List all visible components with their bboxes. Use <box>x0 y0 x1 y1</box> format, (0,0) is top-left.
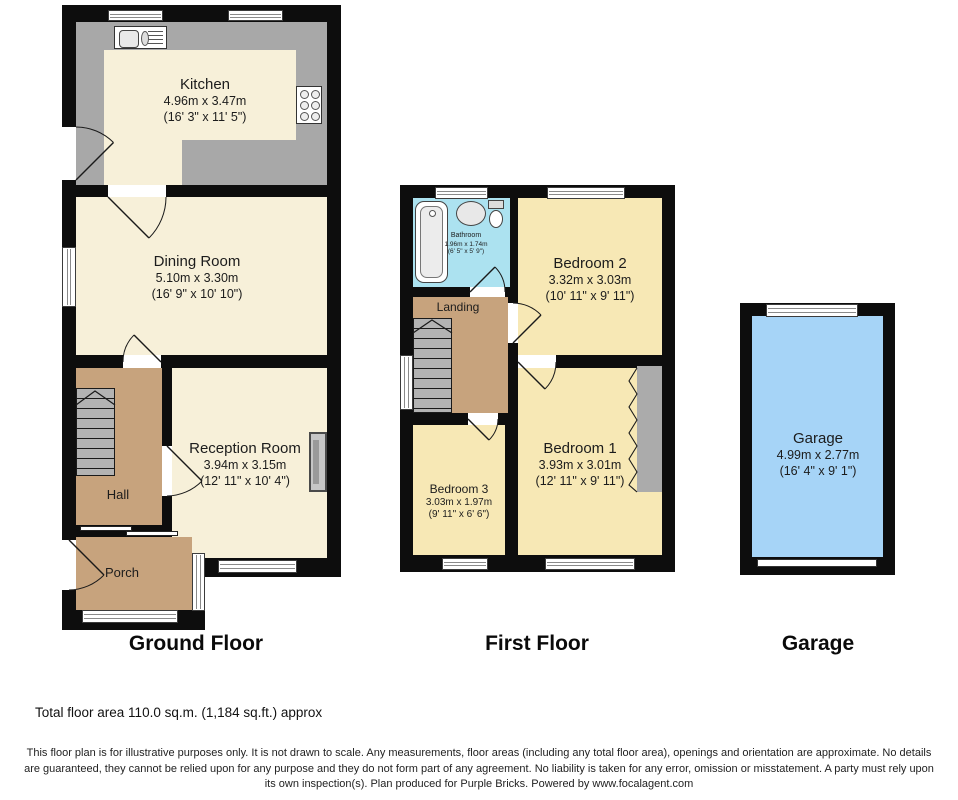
staircase-symbol <box>413 318 452 413</box>
total-floor-area-text: Total floor area 110.0 sq.m. (1,184 sq.f… <box>35 705 322 720</box>
door-opening <box>518 355 556 368</box>
garage-door-symbol <box>757 559 877 567</box>
room-dimensions-metric: 3.93m x 3.01m <box>500 458 660 473</box>
garage-title: Garage <box>718 632 918 656</box>
room-dimensions-imperial: (12' 11" x 9' 11") <box>500 474 660 489</box>
window-symbol <box>442 558 488 570</box>
first-floor-title: First Floor <box>437 632 637 656</box>
room-label-kitchen: Kitchen 4.96m x 3.47m (16' 3" x 11' 5") <box>105 76 305 125</box>
room-label-landing: Landing <box>412 300 504 315</box>
room-name: Hall <box>107 487 129 502</box>
room-name: Porch <box>105 565 139 580</box>
window-symbol <box>228 10 283 21</box>
room-label-bedroom1: Bedroom 1 3.93m x 3.01m (12' 11" x 9' 11… <box>500 440 660 489</box>
window-symbol <box>400 355 413 410</box>
window-symbol <box>82 610 178 623</box>
room-kitchen-lower <box>104 140 182 185</box>
room-dimensions-metric: 1.96m x 1.74m <box>430 241 502 249</box>
room-dimensions-imperial: (6' 5" x 5' 9") <box>430 248 502 256</box>
room-label-porch: Porch <box>82 565 162 581</box>
disclaimer-text: This floor plan is for illustrative purp… <box>24 746 934 793</box>
door-opening <box>508 303 518 343</box>
room-label-bedroom3: Bedroom 3 3.03m x 1.97m (9' 11" x 6' 6") <box>404 482 514 521</box>
staircase-symbol <box>76 388 115 476</box>
room-dimensions-metric: 3.32m x 3.03m <box>510 273 670 288</box>
room-dimensions-metric: 4.96m x 3.47m <box>105 94 305 109</box>
door-opening <box>62 127 76 180</box>
room-name: Bedroom 1 <box>500 440 660 458</box>
door-opening <box>468 413 498 425</box>
sliding-door-symbol <box>126 531 178 536</box>
door-opening <box>62 540 76 590</box>
ground-floor-title: Ground Floor <box>96 632 296 656</box>
room-dimensions-imperial: (16' 9" x 10' 10") <box>97 287 297 302</box>
room-dimensions-metric: 3.03m x 1.97m <box>404 497 514 509</box>
room-label-reception: Reception Room 3.94m x 3.15m (12' 11" x … <box>145 440 345 489</box>
window-symbol <box>766 304 858 317</box>
room-dimensions-imperial: (9' 11" x 6' 6") <box>404 509 514 521</box>
window-symbol <box>192 553 205 611</box>
kitchen-sink-symbol <box>114 26 167 49</box>
floorplan-page: Kitchen 4.96m x 3.47m (16' 3" x 11' 5") … <box>0 0 958 800</box>
room-label-hall: Hall <box>78 487 158 503</box>
room-dimensions-imperial: (12' 11" x 10' 4") <box>145 474 345 489</box>
room-label-garage: Garage 4.99m x 2.77m (16' 4" x 9' 1") <box>738 430 898 479</box>
room-dimensions-imperial: (10' 11" x 9' 11") <box>510 289 670 304</box>
window-symbol <box>547 187 625 199</box>
window-symbol <box>218 560 297 573</box>
room-name: Landing <box>437 300 480 314</box>
sink-bowl-icon <box>119 30 139 48</box>
door-opening <box>470 287 505 297</box>
sliding-door-symbol <box>80 526 132 531</box>
room-dimensions-metric: 3.94m x 3.15m <box>145 458 345 473</box>
window-symbol <box>108 10 163 21</box>
window-symbol <box>435 187 488 199</box>
basin-symbol <box>456 201 486 226</box>
room-label-bedroom2: Bedroom 2 3.32m x 3.03m (10' 11" x 9' 11… <box>510 255 670 304</box>
toilet-bowl-symbol <box>489 210 503 228</box>
room-name: Kitchen <box>105 76 305 94</box>
room-name: Bedroom 2 <box>510 255 670 273</box>
door-opening <box>108 185 166 197</box>
toilet-cistern-symbol <box>488 200 504 209</box>
sink-drainer-icon <box>148 31 163 46</box>
room-name: Dining Room <box>97 253 297 271</box>
room-name: Bedroom 3 <box>404 482 514 497</box>
window-symbol <box>62 247 76 307</box>
room-dimensions-imperial: (16' 4" x 9' 1") <box>738 464 898 479</box>
room-name: Bathroom <box>430 232 502 241</box>
room-name: Reception Room <box>145 440 345 458</box>
room-label-bathroom: Bathroom 1.96m x 1.74m (6' 5" x 5' 9") <box>430 232 502 256</box>
door-opening <box>123 355 161 368</box>
room-name: Garage <box>738 430 898 448</box>
window-symbol <box>545 558 635 570</box>
room-label-dining: Dining Room 5.10m x 3.30m (16' 9" x 10' … <box>97 253 297 302</box>
room-dimensions-metric: 5.10m x 3.30m <box>97 271 297 286</box>
room-dimensions-metric: 4.99m x 2.77m <box>738 448 898 463</box>
room-dimensions-imperial: (16' 3" x 11' 5") <box>105 110 305 125</box>
